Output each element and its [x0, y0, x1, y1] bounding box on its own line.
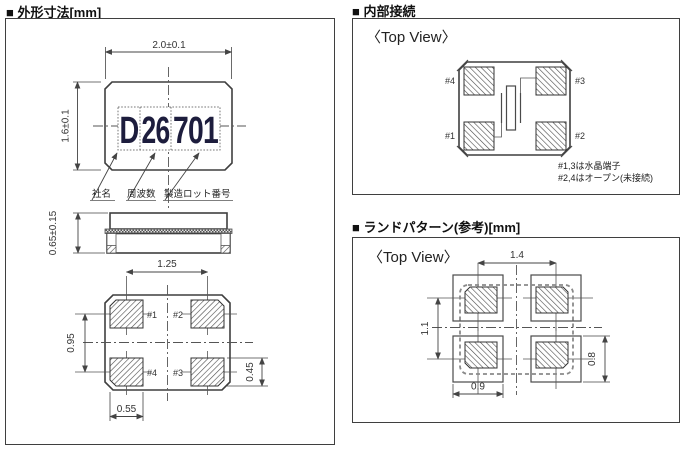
side-terminal-right	[221, 246, 230, 254]
pad-3	[191, 358, 224, 386]
internal-pad-label-2: #2	[575, 131, 585, 141]
pad-1	[110, 300, 143, 328]
pad-1-internal	[464, 122, 494, 150]
pad-4-internal	[464, 67, 494, 95]
dim-pad-h: 0.45	[245, 362, 256, 382]
marking-company-code: D	[120, 110, 139, 152]
dim-height: 1.6±0.1	[61, 109, 72, 143]
internal-pad-label-3: #3	[575, 76, 585, 86]
package-base	[107, 234, 230, 254]
dim-land-pitch-x: 1.4	[510, 250, 524, 261]
chip-pad-bottom-left	[465, 342, 497, 368]
marking-lot-number: 701	[173, 110, 219, 152]
chip-pad-top-left	[465, 287, 497, 313]
internal-connection-drawing: #4 #3 #1 #2 #1,3は水晶端子 #2,4はオープン(未接続)	[352, 18, 680, 195]
dim-pad-w: 0.55	[117, 404, 137, 415]
marking-frequency: 26	[142, 110, 170, 152]
dim-land-w: 0.9	[471, 382, 485, 393]
outline-drawing: 2.0±0.1 1.6±0.1 D 26 701 社名	[5, 18, 335, 445]
datasheet-figure: ■ 外形寸法[mm] 2.0±0.1	[0, 0, 683, 452]
pad-4	[110, 358, 143, 386]
pad-2-internal	[536, 122, 566, 150]
package-lid	[110, 213, 227, 229]
internal-top-view: #4 #3 #1 #2 #1,3は水晶端子 #2,4はオープン(未接続)	[445, 60, 653, 183]
outline-bottom-view: 1.25 #1 #2 #4 #3 0.95	[66, 259, 268, 421]
land-panel-title: ■ ランドパターン(参考)[mm]	[352, 217, 520, 236]
pad-3-internal	[536, 67, 566, 95]
dim-width: 2.0±0.1	[152, 40, 186, 51]
chip-pad-top-right	[536, 287, 568, 313]
dim-land-pitch-y: 1.1	[420, 321, 431, 335]
internal-pad-label-4: #4	[445, 76, 455, 86]
pad-label-1: #1	[147, 310, 157, 320]
dim-pitch-x: 1.25	[157, 259, 177, 270]
chip-pad-bottom-right	[536, 342, 568, 368]
callout-frequency: 周波数	[127, 188, 156, 200]
internal-pad-label-1: #1	[445, 131, 455, 141]
dim-thickness: 0.65±0.15	[48, 210, 59, 255]
outline-side-view: 0.65±0.15	[48, 210, 232, 255]
callout-company: 社名	[92, 188, 111, 200]
outline-top-view: 2.0±0.1 1.6±0.1 D 26 701 社名	[61, 40, 247, 208]
pad-label-4: #4	[147, 368, 157, 378]
pad-label-2: #2	[173, 310, 183, 320]
land-pattern-drawing: 1.4 1.1 0.9 0.8	[352, 237, 680, 423]
side-terminal-left	[107, 246, 116, 254]
callout-lot: 製造ロット番号	[164, 188, 231, 200]
land-top-view: 1.4 1.1 0.9 0.8	[420, 250, 610, 398]
dim-pitch-y: 0.95	[66, 333, 77, 353]
pad-label-3: #3	[173, 368, 183, 378]
pad-2	[191, 300, 224, 328]
dim-land-h: 0.8	[587, 352, 598, 366]
internal-note-1: #1,3は水晶端子	[558, 160, 621, 171]
internal-note-2: #2,4はオープン(未接続)	[558, 172, 653, 183]
